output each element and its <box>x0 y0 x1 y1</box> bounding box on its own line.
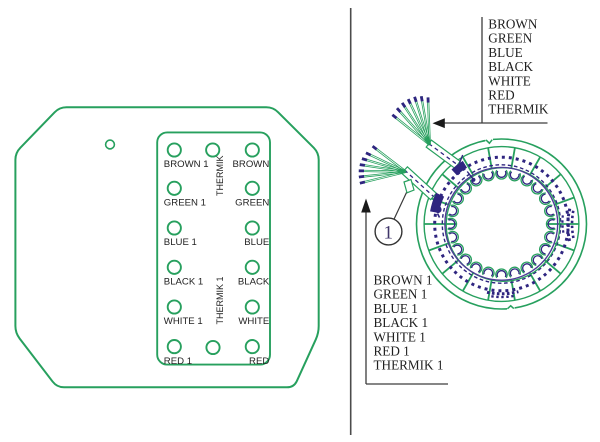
svg-text:BROWN: BROWN <box>233 159 270 170</box>
svg-text:GREEN 1: GREEN 1 <box>374 287 428 302</box>
svg-text:BLACK: BLACK <box>488 59 533 74</box>
svg-text:BROWN: BROWN <box>488 17 538 32</box>
svg-text:RED: RED <box>249 356 269 367</box>
svg-text:RED 1: RED 1 <box>374 344 410 359</box>
svg-text:WHITE 1: WHITE 1 <box>164 316 203 327</box>
svg-text:GREEN: GREEN <box>235 198 269 209</box>
svg-text:BLUE: BLUE <box>488 45 522 60</box>
svg-text:BLUE: BLUE <box>244 237 269 248</box>
svg-text:RED: RED <box>488 88 514 103</box>
svg-text:BLACK: BLACK <box>238 277 270 288</box>
svg-text:THERMIK 1: THERMIK 1 <box>374 358 444 373</box>
svg-text:BLUE 1: BLUE 1 <box>164 237 197 248</box>
svg-text:1: 1 <box>384 223 394 244</box>
svg-text:WHITE: WHITE <box>488 73 530 88</box>
svg-text:THERMIK: THERMIK <box>215 156 225 197</box>
svg-text:GREEN: GREEN <box>488 31 532 46</box>
svg-text:THERMIK: THERMIK <box>488 102 549 117</box>
svg-text:THERMIK 1: THERMIK 1 <box>215 276 225 324</box>
svg-text:WHITE: WHITE <box>238 316 269 327</box>
svg-text:BROWN 1: BROWN 1 <box>374 273 433 288</box>
svg-text:BLUE 1: BLUE 1 <box>374 301 418 316</box>
svg-text:BLACK 1: BLACK 1 <box>164 277 203 288</box>
svg-text:GREEN 1: GREEN 1 <box>164 198 206 209</box>
svg-text:BROWN 1: BROWN 1 <box>164 159 209 170</box>
svg-text:WHITE 1: WHITE 1 <box>374 329 426 344</box>
svg-text:RED 1: RED 1 <box>164 356 192 367</box>
svg-text:BLACK 1: BLACK 1 <box>374 315 429 330</box>
